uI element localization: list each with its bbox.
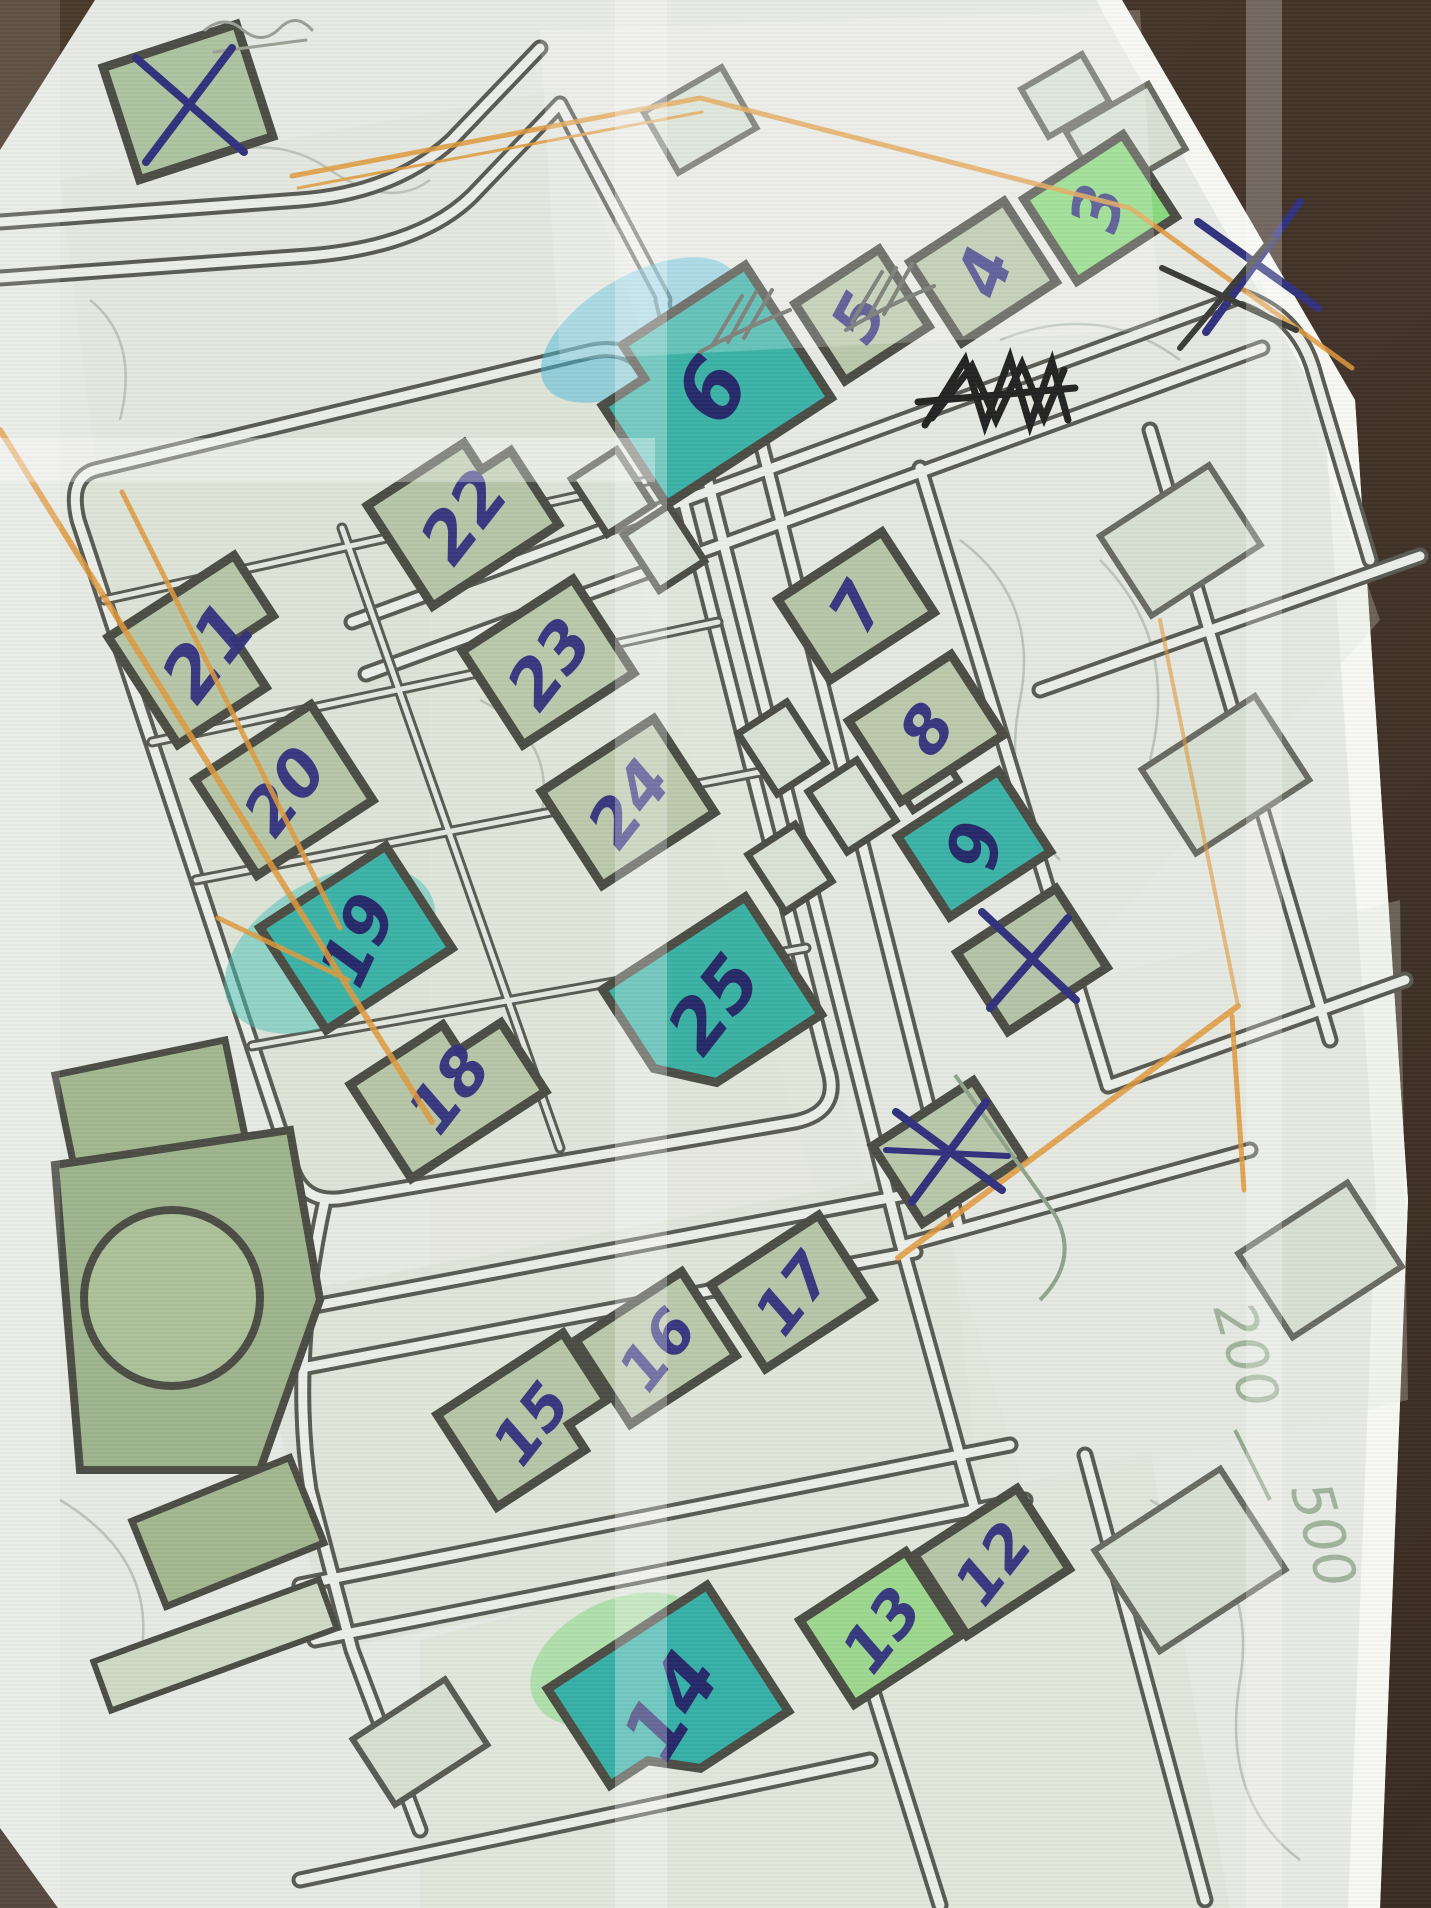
- park-circle-feature: [84, 1210, 260, 1386]
- photo-of-annotated-paper-map: 3 4 5 6 7 8 9 12 13 14 15 16 17 18 19 20…: [0, 0, 1431, 1908]
- map-photo-canvas: 3 4 5 6 7 8 9 12 13 14 15 16 17 18 19 20…: [0, 0, 1431, 1908]
